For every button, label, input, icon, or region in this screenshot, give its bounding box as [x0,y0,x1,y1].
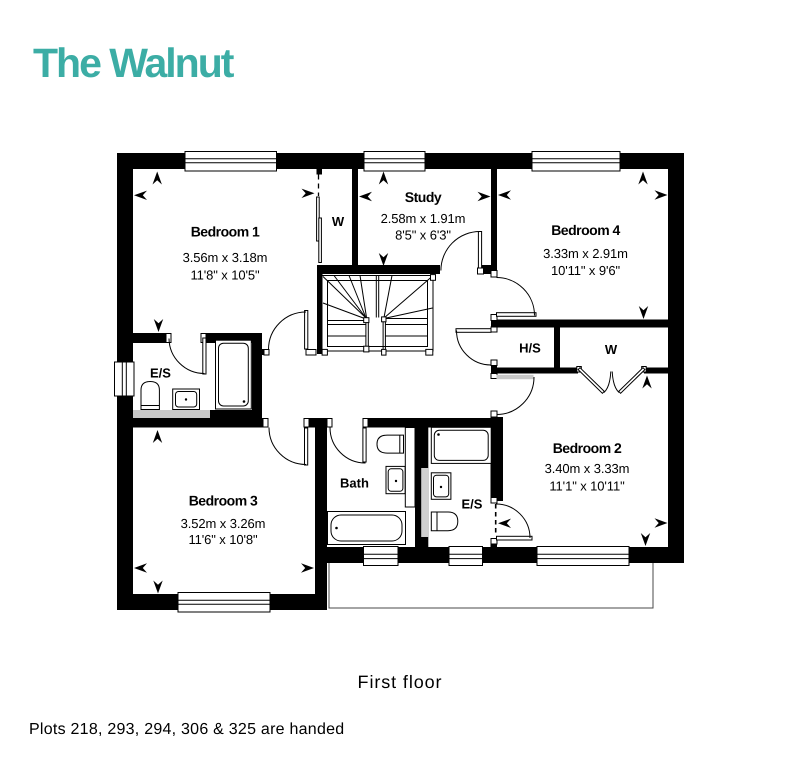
svg-text:W: W [605,342,618,357]
svg-text:11'1" x 10'11": 11'1" x 10'11" [549,479,625,494]
svg-text:First floor: First floor [358,672,443,692]
svg-text:W: W [332,214,345,229]
svg-text:8'5" x 6'3": 8'5" x 6'3" [395,228,451,243]
svg-text:11'6" x 10'8": 11'6" x 10'8" [188,532,258,547]
svg-text:E/S: E/S [150,366,171,381]
svg-text:The Walnut: The Walnut [33,40,235,86]
svg-text:2.58m x 1.91m: 2.58m x 1.91m [381,211,466,226]
svg-text:3.33m x 2.91m: 3.33m x 2.91m [543,246,628,261]
svg-text:Plots 218, 293, 294, 306 & 325: Plots 218, 293, 294, 306 & 325 are hande… [29,721,344,738]
svg-text:3.52m x 3.26m: 3.52m x 3.26m [181,516,266,531]
svg-text:E/S: E/S [462,497,483,512]
svg-text:3.56m x 3.18m: 3.56m x 3.18m [183,250,268,265]
svg-text:Bedroom 1: Bedroom 1 [191,224,260,240]
svg-text:11'8" x 10'5": 11'8" x 10'5" [190,268,260,283]
svg-text:H/S: H/S [519,341,541,356]
svg-text:10'11" x 9'6": 10'11" x 9'6" [551,263,621,278]
svg-text:3.40m x 3.33m: 3.40m x 3.33m [545,461,630,476]
svg-text:Bedroom 3: Bedroom 3 [189,493,258,509]
svg-text:Study: Study [405,189,442,205]
svg-text:Bedroom 4: Bedroom 4 [551,222,620,238]
svg-text:Bath: Bath [340,476,369,491]
svg-text:Bedroom 2: Bedroom 2 [553,440,622,456]
